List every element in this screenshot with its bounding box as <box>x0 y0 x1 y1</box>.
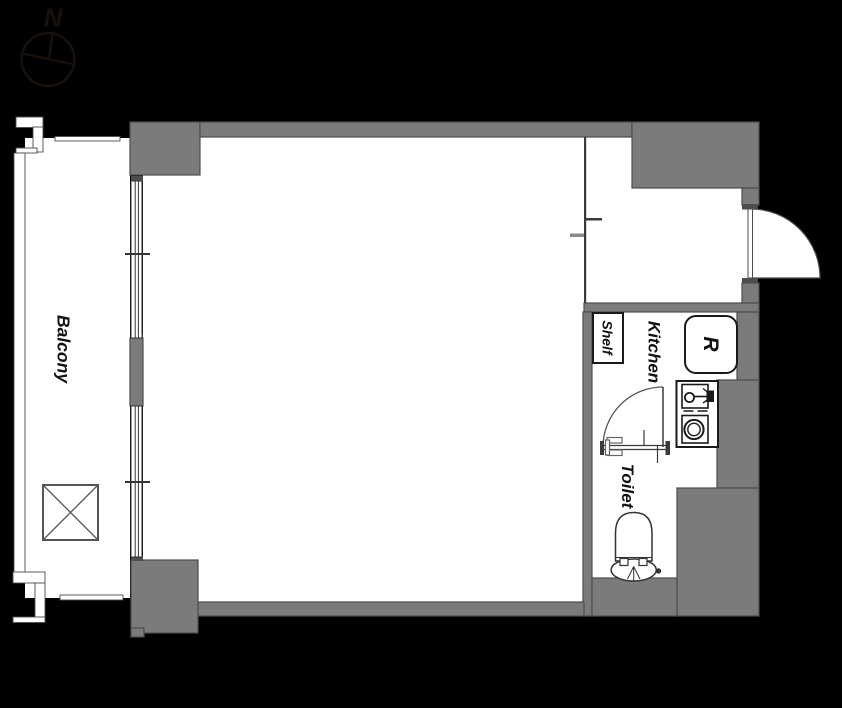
balcony-label: Balcony <box>54 315 74 384</box>
wall-bottom-left-block <box>131 560 198 633</box>
shelf-label: Shelf <box>600 320 616 356</box>
railing-bottom-cap <box>13 617 45 623</box>
wall-top-left-block <box>130 122 200 175</box>
toilet-hinge-left <box>620 559 628 566</box>
toilet-flush-dot <box>656 568 661 573</box>
partition-tick-left <box>570 234 584 238</box>
kitchen-label: Kitchen <box>645 321 664 383</box>
sink-drain <box>685 393 694 402</box>
refrigerator-label: R <box>699 336 722 352</box>
jamb-entrance-bottom <box>742 278 758 284</box>
railing-top-hook-h <box>16 117 43 128</box>
toilet-hinge-right <box>639 559 647 566</box>
wall-top-right-block <box>632 122 759 188</box>
partition-tick-right <box>586 218 602 221</box>
entrance-door-leaf <box>748 209 753 278</box>
railing-bottom-hook-h <box>13 572 45 583</box>
balcony-top-divider <box>55 137 120 142</box>
balcony-bottom-divider <box>60 595 123 600</box>
compass-north-label: N <box>44 3 64 33</box>
floor-plan-canvas: N Balcony Shelf Kitchen R Toilet <box>0 0 842 708</box>
partition-line <box>584 137 586 303</box>
wall-inner-left-strip <box>583 312 592 616</box>
wall-bottom-strip <box>198 602 584 616</box>
jamb-window1-top <box>131 176 143 181</box>
railing-top-cap <box>16 148 37 153</box>
window-upper <box>131 181 142 338</box>
main-room-floor <box>143 137 584 602</box>
wall-right-above-door <box>742 188 759 205</box>
wall-right-of-fridge <box>737 312 759 380</box>
railing-left-band <box>14 153 25 578</box>
wall-top-strip <box>200 122 632 137</box>
floor-plan: N Balcony Shelf Kitchen R Toilet <box>0 0 842 708</box>
toilet-door-jamb-right <box>666 441 671 455</box>
wall-bottom-left-foot <box>131 628 144 637</box>
latch-body <box>606 440 610 455</box>
wall-window-pillar <box>130 338 143 406</box>
wall-entry-kitchen <box>584 303 759 312</box>
railing-bottom-hook-v <box>35 583 45 617</box>
toilet-bowl <box>616 513 653 562</box>
toilet-label: Toilet <box>618 464 637 510</box>
wall-right-of-kitchen <box>717 380 759 488</box>
wall-bottom-right-block <box>677 488 759 616</box>
ac-unit-symbol <box>43 485 98 540</box>
wall-below-toilet <box>592 578 677 616</box>
toilet-door-jamb-left <box>600 441 604 455</box>
